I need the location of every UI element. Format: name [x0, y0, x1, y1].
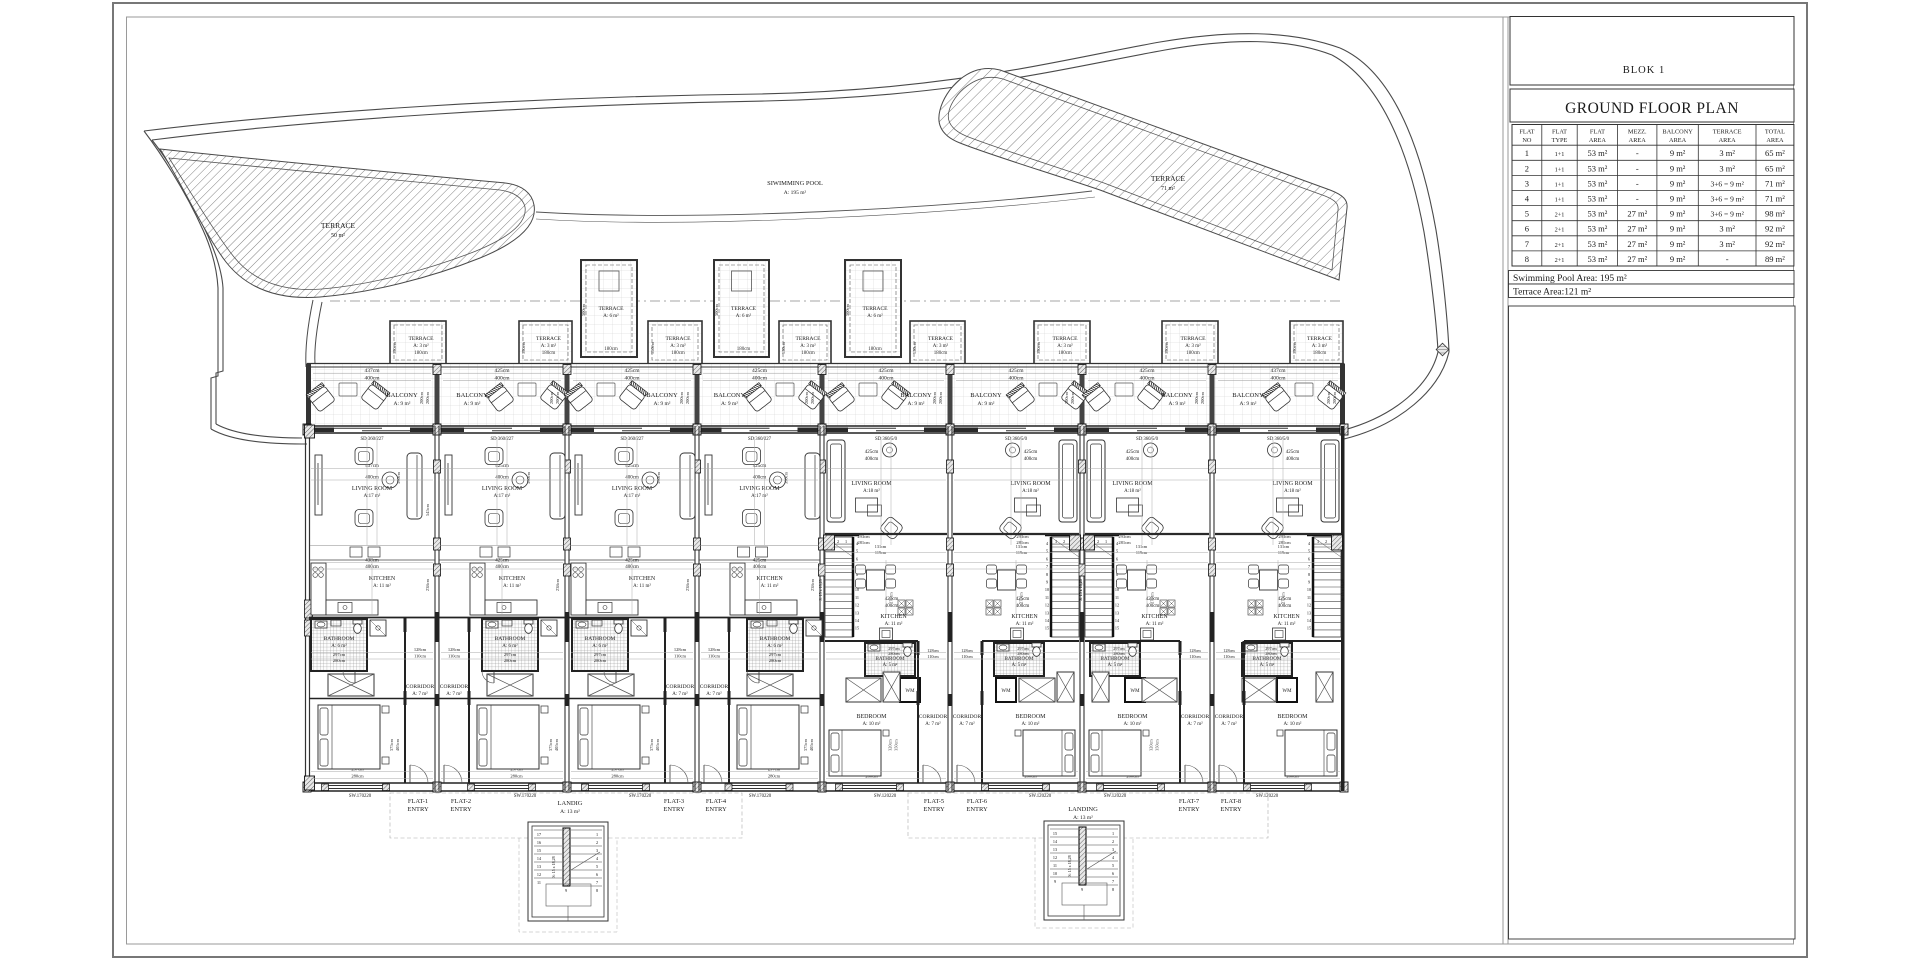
svg-text:A: 9 m²: A: 9 m²	[1169, 401, 1186, 407]
svg-text:BALCONY: BALCONY	[900, 392, 932, 399]
svg-text:1+1: 1+1	[1555, 181, 1565, 188]
svg-text:53 m²: 53 m²	[1588, 194, 1608, 204]
svg-text:400cm: 400cm	[885, 604, 899, 609]
svg-text:71 m²: 71 m²	[1161, 186, 1175, 192]
svg-text:BALCONY: BALCONY	[970, 392, 1002, 399]
svg-text:8: 8	[1308, 572, 1310, 577]
svg-text:A: 10 m²: A: 10 m²	[863, 721, 881, 727]
svg-text:FLAT: FLAT	[1590, 129, 1605, 136]
svg-text:180cm: 180cm	[801, 351, 815, 356]
svg-text:65 m²: 65 m²	[1765, 148, 1785, 158]
svg-text:128cm: 128cm	[708, 647, 721, 652]
svg-text:A: 13 m²: A: 13 m²	[1073, 815, 1093, 821]
svg-text:A: 9 m²: A: 9 m²	[721, 401, 738, 407]
svg-text:A:18 m²: A:18 m²	[1022, 488, 1039, 494]
svg-text:110cm: 110cm	[414, 654, 427, 659]
svg-text:FLAT: FLAT	[1519, 129, 1534, 136]
svg-text:27 m²: 27 m²	[1627, 239, 1647, 249]
svg-text:A: 3 m²: A: 3 m²	[800, 343, 816, 349]
svg-text:7: 7	[1308, 564, 1310, 569]
svg-text:375cm: 375cm	[649, 738, 654, 751]
svg-text:ENTRY: ENTRY	[1178, 806, 1200, 813]
svg-text:71 m²: 71 m²	[1765, 194, 1785, 204]
svg-text:A:17 m²: A:17 m²	[494, 493, 511, 499]
svg-text:SD 360/227: SD 360/227	[620, 437, 644, 442]
svg-text:27 m²: 27 m²	[1627, 224, 1647, 234]
svg-text:SD 360/5/0: SD 360/5/0	[1136, 437, 1159, 442]
svg-text:SW.170220: SW.170220	[514, 794, 537, 799]
svg-text:15: 15	[1045, 626, 1049, 631]
svg-text:1: 1	[596, 832, 598, 837]
svg-text:3: 3	[1112, 847, 1114, 852]
svg-text:TERRACE: TERRACE	[598, 306, 624, 312]
svg-text:A: 9 m²: A: 9 m²	[464, 401, 481, 407]
svg-text:53 m²: 53 m²	[1588, 148, 1608, 158]
svg-text:A: 9 m²: A: 9 m²	[654, 401, 671, 407]
svg-text:13: 13	[537, 864, 541, 869]
svg-text:-: -	[1636, 178, 1639, 188]
svg-text:A: 6 m²: A: 6 m²	[603, 313, 619, 319]
svg-text:5: 5	[1308, 549, 1310, 554]
svg-text:281cm: 281cm	[1118, 540, 1131, 545]
svg-text:12: 12	[1115, 603, 1119, 608]
svg-text:FLAT-5: FLAT-5	[924, 798, 944, 805]
svg-text:TERRACE: TERRACE	[1180, 336, 1206, 342]
svg-text:320cm: 320cm	[1149, 739, 1154, 751]
svg-text:400cm: 400cm	[1278, 604, 1292, 609]
svg-text:375cm: 375cm	[803, 738, 808, 751]
svg-text:A: 6 m²: A: 6 m²	[767, 643, 783, 649]
svg-text:405cm: 405cm	[655, 738, 660, 751]
svg-text:KITCHEN: KITCHEN	[1011, 614, 1038, 620]
svg-text:A: 7 m²: A: 7 m²	[959, 721, 975, 727]
svg-text:1+1: 1+1	[1555, 151, 1565, 158]
svg-text:400cm: 400cm	[625, 375, 641, 381]
svg-text:8: 8	[1046, 572, 1048, 577]
svg-text:FLAT-3: FLAT-3	[664, 798, 684, 805]
svg-text:200cm: 200cm	[549, 391, 554, 404]
svg-text:53 m²: 53 m²	[1588, 239, 1608, 249]
svg-text:128cm: 128cm	[674, 647, 687, 652]
svg-text:ENTRY: ENTRY	[407, 806, 429, 813]
svg-text:TERRACE: TERRACE	[1713, 129, 1742, 136]
svg-text:7: 7	[1046, 564, 1048, 569]
svg-text:3 m²: 3 m²	[1719, 148, 1735, 158]
svg-text:131cm: 131cm	[1278, 544, 1290, 549]
svg-text:LIVING ROOM: LIVING ROOM	[851, 481, 892, 487]
svg-text:110cm: 110cm	[674, 654, 687, 659]
svg-text:6: 6	[856, 556, 858, 561]
svg-text:A: 5 m²: A: 5 m²	[1012, 662, 1027, 668]
svg-text:110cm: 110cm	[1189, 654, 1201, 659]
svg-text:128cm: 128cm	[414, 647, 427, 652]
svg-text:425cm: 425cm	[752, 368, 768, 374]
svg-text:200cm: 200cm	[1070, 391, 1075, 404]
svg-text:SD 360/227: SD 360/227	[360, 437, 384, 442]
svg-text:WM: WM	[1282, 689, 1292, 694]
svg-text:2: 2	[1063, 539, 1065, 544]
svg-text:ENTRY: ENTRY	[923, 806, 945, 813]
svg-text:CORRIDOR: CORRIDOR	[1181, 714, 1210, 720]
svg-text:TERRACE: TERRACE	[1307, 336, 1333, 342]
svg-text:BALCONY: BALCONY	[1662, 129, 1693, 136]
svg-text:9 m²: 9 m²	[1670, 163, 1686, 173]
svg-text:238cm: 238cm	[810, 578, 815, 591]
svg-text:MEZZ.: MEZZ.	[1628, 129, 1647, 136]
svg-text:13: 13	[1307, 610, 1311, 615]
svg-text:92 m²: 92 m²	[1765, 224, 1785, 234]
svg-text:300cm: 300cm	[845, 303, 850, 316]
svg-text:180cm: 180cm	[671, 351, 685, 356]
svg-text:200cm: 200cm	[425, 391, 430, 404]
svg-text:A: 3 m²: A: 3 m²	[413, 343, 429, 349]
svg-text:A: 9 m²: A: 9 m²	[978, 401, 995, 407]
svg-text:350cm: 350cm	[894, 739, 899, 751]
svg-text:27 m²: 27 m²	[1627, 254, 1647, 264]
svg-text:TERRACE: TERRACE	[1151, 174, 1186, 183]
svg-text:400cm: 400cm	[365, 375, 381, 381]
svg-text:3+6 = 9 m²: 3+6 = 9 m²	[1710, 195, 1744, 204]
svg-text:BATHROOM: BATHROOM	[585, 636, 616, 642]
svg-text:5: 5	[856, 549, 858, 554]
svg-text:13: 13	[1053, 847, 1057, 852]
svg-text:CORRIDOR: CORRIDOR	[406, 684, 435, 690]
svg-text:425cm: 425cm	[1140, 368, 1156, 374]
svg-text:7: 7	[1112, 879, 1114, 884]
svg-text:BEDROOM: BEDROOM	[1015, 714, 1046, 720]
svg-text:GROUND FLOOR PLAN: GROUND FLOOR PLAN	[1565, 100, 1739, 117]
svg-text:280cm: 280cm	[1017, 651, 1029, 656]
svg-text:CORRIDOR: CORRIDOR	[700, 684, 729, 690]
svg-text:-: -	[1726, 254, 1729, 264]
svg-text:9: 9	[565, 888, 567, 893]
svg-text:SW.120220: SW.120220	[1029, 794, 1052, 799]
svg-text:TOTAL: TOTAL	[1765, 129, 1785, 136]
svg-text:CORRIDOR: CORRIDOR	[666, 684, 695, 690]
svg-text:11: 11	[537, 880, 541, 885]
svg-text:3: 3	[1525, 178, 1529, 188]
svg-text:LIVING ROOM: LIVING ROOM	[1272, 481, 1313, 487]
svg-text:150cm: 150cm	[1292, 341, 1297, 354]
svg-text:13: 13	[1115, 610, 1119, 615]
svg-text:6: 6	[1046, 556, 1048, 561]
svg-text:200cm: 200cm	[932, 391, 937, 404]
svg-text:Swimming Pool Area: 195 m²: Swimming Pool Area: 195 m²	[1513, 274, 1627, 284]
svg-text:AREA: AREA	[1629, 137, 1647, 144]
svg-text:KITCHEN: KITCHEN	[629, 576, 656, 582]
svg-text:TERRACE: TERRACE	[1052, 336, 1078, 342]
svg-text:280cm: 280cm	[351, 774, 364, 779]
svg-text:180cm: 180cm	[604, 347, 618, 352]
svg-text:-: -	[1636, 163, 1639, 173]
svg-text:110cm: 110cm	[708, 654, 721, 659]
svg-text:A: 10 m²: A: 10 m²	[1022, 721, 1040, 727]
svg-text:BALCONY: BALCONY	[386, 392, 418, 399]
svg-text:400cm: 400cm	[495, 375, 511, 381]
svg-text:350cm: 350cm	[1155, 739, 1160, 751]
svg-text:200cm: 200cm	[1064, 391, 1069, 404]
svg-text:A: 10 m²: A: 10 m²	[1124, 721, 1142, 727]
svg-text:A: 6 m²: A: 6 m²	[331, 643, 347, 649]
svg-text:TERRACE: TERRACE	[862, 306, 888, 312]
svg-text:7: 7	[596, 880, 598, 885]
svg-text:A: 11 m²: A: 11 m²	[373, 583, 391, 589]
svg-text:TERRACE: TERRACE	[321, 221, 356, 230]
svg-text:A: 6 m²: A: 6 m²	[502, 643, 518, 649]
svg-text:200cm: 200cm	[938, 391, 943, 404]
svg-text:7: 7	[1525, 239, 1529, 249]
svg-text:KITCHEN: KITCHEN	[369, 576, 396, 582]
svg-text:425cm: 425cm	[879, 368, 895, 374]
svg-text:A: 11 m²: A: 11 m²	[1016, 621, 1034, 627]
svg-text:9 m²: 9 m²	[1670, 178, 1686, 188]
svg-text:390cm: 390cm	[784, 471, 789, 484]
svg-text:200cm: 200cm	[804, 391, 809, 404]
svg-text:110cm: 110cm	[448, 654, 461, 659]
svg-text:10: 10	[1307, 587, 1311, 592]
svg-text:ENTRY: ENTRY	[966, 806, 988, 813]
svg-text:BALCONY: BALCONY	[714, 392, 746, 399]
svg-text:390cm: 390cm	[656, 471, 661, 484]
svg-text:9: 9	[1081, 887, 1083, 892]
svg-text:6: 6	[1525, 224, 1529, 234]
svg-text:BEDROOM: BEDROOM	[1277, 714, 1308, 720]
svg-text:425cm: 425cm	[625, 368, 641, 374]
svg-text:110cm: 110cm	[1223, 654, 1235, 659]
svg-text:150cm: 150cm	[392, 341, 397, 354]
svg-text:281cm: 281cm	[857, 540, 870, 545]
svg-text:12: 12	[1045, 603, 1049, 608]
svg-text:1: 1	[845, 539, 847, 544]
svg-text:2+1: 2+1	[1555, 257, 1565, 264]
svg-text:16: 16	[537, 840, 541, 845]
svg-text:CORRIDOR: CORRIDOR	[953, 714, 982, 720]
svg-text:400cm: 400cm	[1140, 375, 1156, 381]
svg-text:LANDING: LANDING	[1068, 806, 1098, 813]
svg-text:A: 3 m²: A: 3 m²	[933, 343, 949, 349]
svg-text:425cm: 425cm	[495, 368, 511, 374]
svg-text:405cm: 405cm	[395, 738, 400, 751]
svg-text:A: 9 m²: A: 9 m²	[1240, 401, 1257, 407]
svg-text:A: 3 m²: A: 3 m²	[541, 343, 557, 349]
svg-text:10: 10	[1045, 587, 1049, 592]
svg-text:11: 11	[1053, 863, 1057, 868]
svg-text:A: 6 m²: A: 6 m²	[867, 313, 883, 319]
svg-text:A: 7 m²: A: 7 m²	[672, 691, 688, 697]
svg-text:238cm: 238cm	[685, 578, 690, 591]
svg-text:TERRACE: TERRACE	[408, 336, 434, 342]
svg-text:280cm: 280cm	[510, 774, 523, 779]
svg-text:15: 15	[1307, 626, 1311, 631]
svg-text:400cm: 400cm	[865, 457, 879, 462]
svg-text:280cm: 280cm	[1265, 651, 1277, 656]
svg-text:200cm: 200cm	[679, 391, 684, 404]
svg-text:13: 13	[855, 610, 859, 615]
svg-text:425cm: 425cm	[1024, 450, 1038, 455]
svg-text:FLAT-6: FLAT-6	[967, 798, 988, 805]
svg-text:180cm: 180cm	[1313, 351, 1327, 356]
svg-text:FLAT: FLAT	[1552, 129, 1567, 136]
svg-text:11: 11	[1115, 595, 1119, 600]
svg-text:180cm: 180cm	[1186, 351, 1200, 356]
svg-text:BLOK 1: BLOK 1	[1623, 65, 1665, 76]
svg-text:FLAT-2: FLAT-2	[451, 798, 471, 805]
svg-text:150cm: 150cm	[650, 341, 655, 354]
svg-text:3+6 = 9 m²: 3+6 = 9 m²	[1710, 179, 1744, 188]
svg-text:12: 12	[1307, 603, 1311, 608]
svg-text:4: 4	[1525, 194, 1530, 204]
svg-text:CORRIDOR: CORRIDOR	[440, 684, 469, 690]
svg-text:12: 12	[855, 603, 859, 608]
svg-text:AREA: AREA	[1669, 137, 1687, 144]
svg-text:A: 7 m²: A: 7 m²	[446, 691, 462, 697]
svg-text:400cm: 400cm	[879, 375, 895, 381]
svg-text:275cm: 275cm	[888, 592, 893, 604]
svg-text:150cm: 150cm	[912, 341, 917, 354]
svg-text:180cm: 180cm	[414, 351, 428, 356]
svg-text:A: 7 m²: A: 7 m²	[412, 691, 428, 697]
svg-text:A:18 m²: A:18 m²	[1284, 488, 1301, 494]
svg-text:65 m²: 65 m²	[1765, 163, 1785, 173]
svg-text:1: 1	[1525, 148, 1529, 158]
svg-text:A: 11 m²: A: 11 m²	[633, 583, 651, 589]
svg-text:ENTRY: ENTRY	[1220, 806, 1242, 813]
svg-text:9: 9	[1054, 879, 1056, 884]
svg-text:375cm: 375cm	[389, 738, 394, 751]
svg-text:180cm: 180cm	[737, 347, 751, 352]
svg-text:9 m²: 9 m²	[1670, 254, 1686, 264]
svg-text:SD 360/5/0: SD 360/5/0	[1267, 437, 1290, 442]
svg-text:2: 2	[1325, 539, 1327, 544]
svg-text:A: 11 m²: A: 11 m²	[885, 621, 903, 627]
svg-text:A: 11 m²: A: 11 m²	[1278, 621, 1296, 627]
svg-text:15: 15	[1053, 831, 1057, 836]
svg-text:150cm: 150cm	[1036, 341, 1041, 354]
svg-text:27 m²: 27 m²	[1627, 209, 1647, 219]
svg-text:15: 15	[537, 848, 541, 853]
svg-text:A: 13 m²: A: 13 m²	[560, 809, 580, 815]
svg-text:A: 3 m²: A: 3 m²	[1312, 343, 1328, 349]
svg-text:275cm: 275cm	[1150, 592, 1155, 604]
svg-text:2+1: 2+1	[1555, 212, 1565, 219]
svg-text:SW.170220: SW.170220	[749, 794, 772, 799]
svg-text:200cm: 200cm	[810, 391, 815, 404]
svg-text:SW.170220: SW.170220	[629, 794, 652, 799]
svg-text:CORRIDOR: CORRIDOR	[919, 714, 948, 720]
svg-text:FLAT-7: FLAT-7	[1179, 798, 1200, 805]
svg-text:6: 6	[596, 872, 598, 877]
svg-text:425cm: 425cm	[865, 450, 879, 455]
svg-text:A: 11 m²: A: 11 m²	[1146, 621, 1164, 627]
svg-text:320cm: 320cm	[888, 739, 893, 751]
svg-text:BALCONY: BALCONY	[456, 392, 488, 399]
svg-text:11: 11	[1045, 595, 1049, 600]
svg-text:1+1: 1+1	[1555, 197, 1565, 204]
svg-text:545cm: 545cm	[425, 503, 430, 516]
svg-text:425cm: 425cm	[1009, 368, 1025, 374]
svg-text:1: 1	[1112, 831, 1114, 836]
svg-text:TYPE: TYPE	[1552, 137, 1568, 144]
svg-text:400cm: 400cm	[752, 375, 768, 381]
svg-text:300cm: 300cm	[714, 303, 719, 316]
svg-text:1+1: 1+1	[1555, 166, 1565, 173]
svg-text:SW.170220: SW.170220	[349, 794, 372, 799]
svg-text:238cm: 238cm	[425, 578, 430, 591]
svg-text:WM: WM	[1130, 689, 1140, 694]
svg-text:LANDIG: LANDIG	[558, 800, 583, 807]
svg-text:KITCHEN: KITCHEN	[499, 576, 526, 582]
svg-text:5: 5	[1112, 863, 1114, 868]
svg-text:53 m²: 53 m²	[1588, 224, 1608, 234]
svg-text:6: 6	[1308, 556, 1310, 561]
svg-text:AREA: AREA	[1766, 137, 1784, 144]
svg-text:A:17 m²: A:17 m²	[751, 493, 768, 499]
svg-text:5: 5	[1046, 549, 1048, 554]
svg-text:13: 13	[1045, 610, 1049, 615]
svg-text:A:17 m²: A:17 m²	[624, 493, 641, 499]
svg-text:AREA: AREA	[1589, 137, 1607, 144]
svg-text:6: 6	[1116, 556, 1118, 561]
svg-text:53 m²: 53 m²	[1588, 254, 1608, 264]
svg-text:LIVING ROOM: LIVING ROOM	[1010, 481, 1051, 487]
svg-text:200cm: 200cm	[1332, 391, 1337, 404]
svg-text:A: 7 m²: A: 7 m²	[706, 691, 722, 697]
svg-text:110cm: 110cm	[961, 654, 973, 659]
svg-text:A: 5 m²: A: 5 m²	[1108, 662, 1123, 668]
svg-text:LIVING ROOM: LIVING ROOM	[1112, 481, 1153, 487]
svg-text:3 m²: 3 m²	[1719, 163, 1735, 173]
svg-text:98 m²: 98 m²	[1765, 209, 1785, 219]
svg-text:NO: NO	[1522, 137, 1532, 144]
svg-text:400cm: 400cm	[1146, 604, 1160, 609]
svg-text:A: 7 m²: A: 7 m²	[1187, 721, 1203, 727]
svg-text:10: 10	[1053, 871, 1057, 876]
svg-text:6: 6	[1112, 871, 1114, 876]
svg-text:A: 10 m²: A: 10 m²	[1284, 721, 1302, 727]
svg-text:A: 7 m²: A: 7 m²	[1221, 721, 1237, 727]
svg-text:TERRACE: TERRACE	[731, 306, 757, 312]
svg-text:150cm: 150cm	[1164, 341, 1169, 354]
svg-text:ENTRY: ENTRY	[663, 806, 685, 813]
svg-text:FLAT-4: FLAT-4	[706, 798, 727, 805]
svg-text:2+1: 2+1	[1555, 227, 1565, 234]
svg-text:15: 15	[855, 626, 859, 631]
svg-text:TERRACE: TERRACE	[536, 336, 562, 342]
svg-text:300cm: 300cm	[581, 303, 586, 316]
svg-text:1: 1	[1105, 539, 1107, 544]
svg-text:400cm: 400cm	[1024, 457, 1038, 462]
svg-text:SW.120220: SW.120220	[1104, 794, 1127, 799]
svg-text:110cm: 110cm	[927, 654, 939, 659]
svg-text:400cm: 400cm	[1126, 457, 1140, 462]
svg-text:A: 3 m²: A: 3 m²	[1057, 343, 1073, 349]
svg-text:A:18 m²: A:18 m²	[1124, 488, 1141, 494]
svg-text:A:18 m²: A:18 m²	[863, 488, 880, 494]
svg-text:437cm: 437cm	[365, 368, 381, 374]
svg-text:KITCHEN: KITCHEN	[756, 576, 783, 582]
svg-text:200cm: 200cm	[1194, 391, 1199, 404]
svg-text:SD 360/5/0: SD 360/5/0	[875, 437, 898, 442]
svg-text:425cm: 425cm	[1126, 450, 1140, 455]
svg-text:FLAT-1: FLAT-1	[408, 798, 428, 805]
svg-text:3 m²: 3 m²	[1719, 224, 1735, 234]
svg-text:11: 11	[855, 595, 859, 600]
svg-text:53 m²: 53 m²	[1588, 178, 1608, 188]
svg-text:SD 360/5/0: SD 360/5/0	[1005, 437, 1028, 442]
svg-text:390cm: 390cm	[396, 471, 401, 484]
svg-text:400cm: 400cm	[1009, 375, 1025, 381]
svg-text:9 m²: 9 m²	[1670, 148, 1686, 158]
